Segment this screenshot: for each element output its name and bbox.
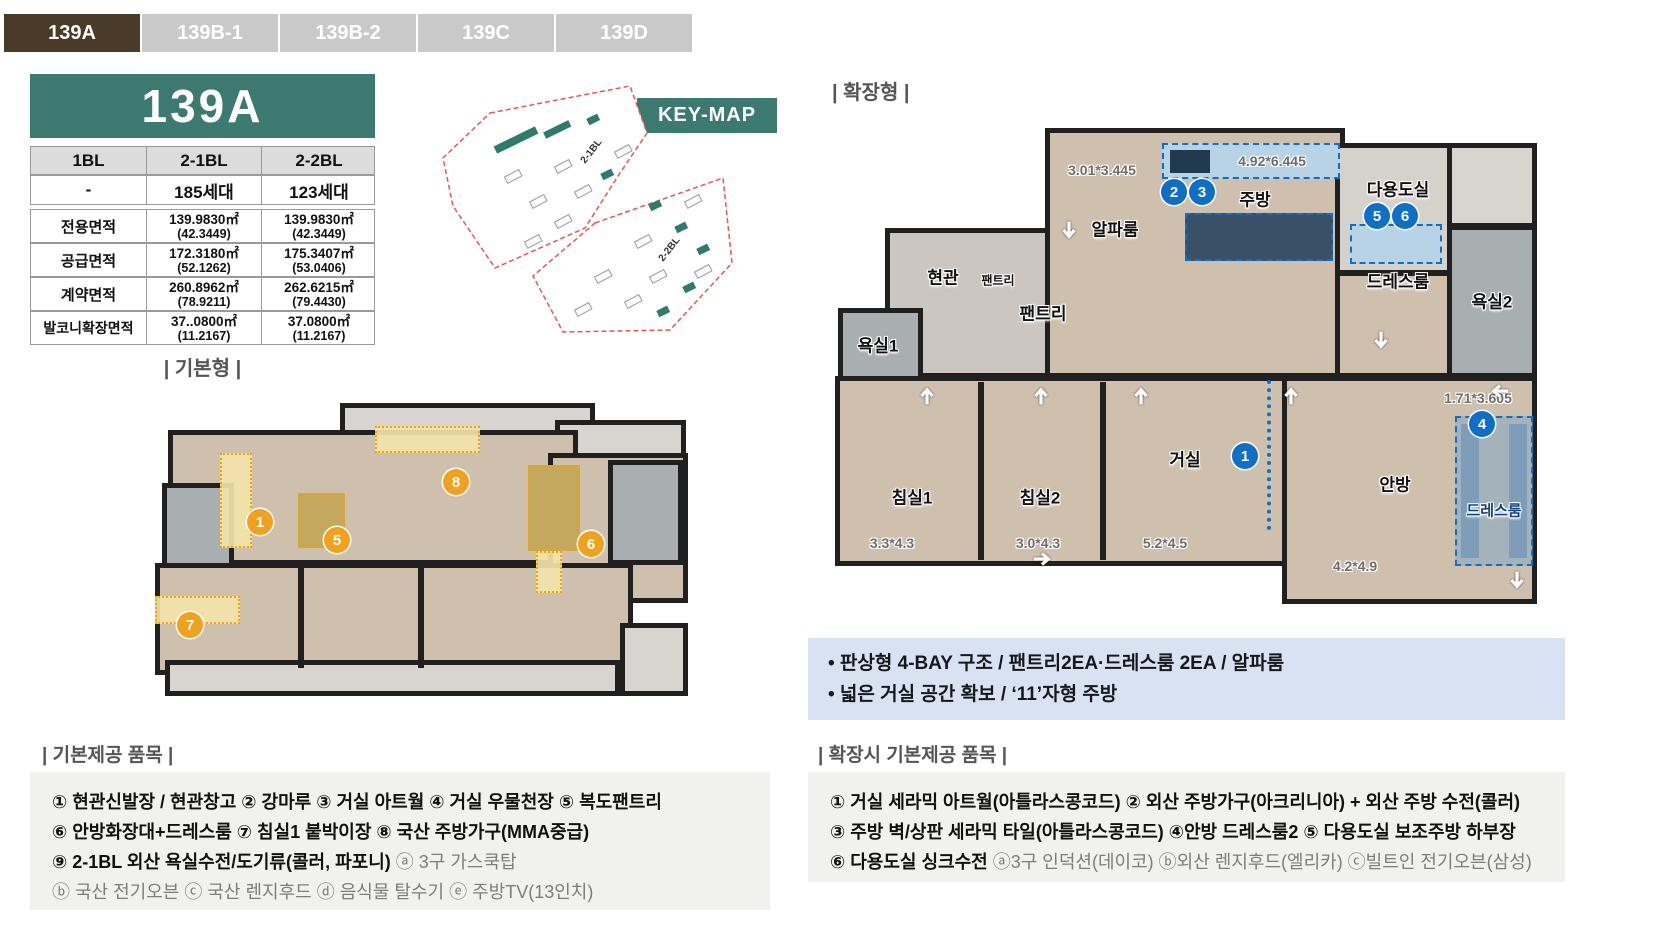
summary-bullet-1: • 판상형 4-BAY 구조 / 팬트리2EA·드레스룸 2EA / 알파룸 bbox=[828, 653, 1284, 674]
area-value: 139.9830㎡ bbox=[284, 212, 354, 227]
households-1bl: - bbox=[31, 176, 146, 204]
master-dressroom-highlight bbox=[1455, 416, 1533, 566]
row-label: 발코니확장면적 bbox=[31, 312, 146, 344]
page: 139A 139B-1 139B-2 139C 139D 139A 1BL 2-… bbox=[0, 0, 1665, 938]
col-header-21bl: 2-1BL bbox=[146, 147, 261, 174]
living-extension-line bbox=[1267, 380, 1271, 530]
table-row: 발코니확장면적 37..0800㎡(11.2167) 37.0800㎡(11.2… bbox=[30, 311, 375, 345]
direction-arrow-icon bbox=[1030, 386, 1052, 408]
basic-plan-heading: | 기본형 | bbox=[30, 352, 375, 381]
master-label: 안방 bbox=[1379, 471, 1410, 496]
direction-arrow-icon bbox=[1130, 386, 1152, 408]
area-sub: (53.0406) bbox=[292, 261, 346, 275]
extended-items-box: ① 거실 세라믹 아트월(아틀라스콩코드) ② 외산 주방가구(아크리니아) +… bbox=[808, 772, 1565, 882]
area-sub: (42.3449) bbox=[292, 227, 346, 241]
direction-arrow-icon bbox=[1506, 568, 1528, 590]
area-sub: (42.3449) bbox=[177, 227, 231, 241]
direction-arrow-icon bbox=[1058, 218, 1080, 240]
summary-bullet-2: • 넓은 거실 공간 확보 / ‘11’자형 주방 bbox=[828, 684, 1117, 705]
tab-139c[interactable]: 139C bbox=[418, 14, 554, 52]
direction-arrow-icon bbox=[1370, 328, 1392, 350]
ext-badge-2: 2 bbox=[1161, 179, 1187, 205]
tab-139d[interactable]: 139D bbox=[556, 14, 692, 52]
pantry-label: 팬트리 bbox=[1020, 300, 1067, 325]
households-22bl: 123세대 bbox=[261, 176, 376, 204]
extended-items-line3: ⑥ 다용도실 싱크수전 bbox=[830, 852, 993, 872]
table-row: 공급면적 172.3180㎡(52.1262) 175.3407㎡(53.040… bbox=[30, 243, 375, 277]
dressroom-label: 드레스룸 bbox=[1367, 268, 1430, 293]
master-dim: 4.2*4.9 bbox=[1333, 558, 1377, 574]
balcony bbox=[165, 660, 620, 696]
basic-floor-plan: 1 5 6 7 8 bbox=[150, 398, 695, 723]
row-label: 전용면적 bbox=[31, 210, 146, 242]
ext-badge-3: 3 bbox=[1189, 179, 1215, 205]
kitchen-label: 주방 bbox=[1239, 186, 1270, 211]
item-badge-8: 8 bbox=[443, 469, 469, 495]
basic-items-line1: ① 현관신발장 / 현관창고 ② 강마루 ③ 거실 아트월 ④ 거실 우물천장 … bbox=[52, 787, 748, 817]
row-label: 계약면적 bbox=[31, 278, 146, 310]
area-value: 37..0800㎡ bbox=[171, 314, 237, 329]
direction-arrow-icon bbox=[1030, 548, 1052, 570]
table-row: 계약면적 260.8962㎡(78.9211) 262.6215㎡(79.443… bbox=[30, 277, 375, 311]
extended-plan-heading: | 확장형 | bbox=[832, 76, 910, 105]
bath2-label: 욕실2 bbox=[1472, 288, 1513, 313]
dress2-label: 드레스룸 bbox=[1466, 500, 1521, 521]
cooktop bbox=[1170, 150, 1210, 173]
entry-label: 현관 bbox=[927, 264, 958, 289]
pantry-small-label: 팬트리 bbox=[981, 272, 1014, 289]
area-value: 175.3407㎡ bbox=[284, 246, 354, 261]
table-row: 전용면적 139.9830㎡(42.3449) 139.9830㎡(42.344… bbox=[30, 209, 375, 243]
area-sub: (11.2167) bbox=[178, 329, 231, 343]
area-value: 172.3180㎡ bbox=[169, 246, 239, 261]
basic-items-line3: ⑨ 2-1BL 외산 욕실수전/도기류(콜러, 파포니) bbox=[52, 852, 396, 872]
household-row: - 185세대 123세대 bbox=[30, 175, 375, 205]
bed1-dim: 3.3*4.3 bbox=[870, 535, 914, 551]
living-label: 거실 bbox=[1169, 446, 1200, 471]
direction-arrow-icon bbox=[1490, 380, 1512, 402]
col-header-1bl: 1BL bbox=[31, 147, 146, 174]
living-dim: 5.2*4.5 bbox=[1143, 535, 1187, 551]
extended-items-line2: ③ 주방 벽/상판 세라믹 타일(아틀라스콩코드) ④안방 드레스룸2 ⑤ 다용… bbox=[830, 817, 1543, 847]
item-highlight-vanity bbox=[536, 551, 562, 593]
area-sub: (78.9211) bbox=[178, 295, 231, 309]
item-badge-7: 7 bbox=[177, 612, 203, 638]
row-label: 공급면적 bbox=[31, 244, 146, 276]
bed1-label: 침실1 bbox=[892, 484, 933, 509]
extended-items-line3-gray: ⓐ3구 인덕션(데이코) ⓑ외산 렌지후드(엘리카) ⓒ빌트인 전기오븐(삼성) bbox=[993, 852, 1532, 872]
ext-badge-1: 1 bbox=[1232, 443, 1258, 469]
item-badge-6: 6 bbox=[578, 531, 604, 557]
area-value: 139.9830㎡ bbox=[169, 212, 239, 227]
area-value: 37.0800㎡ bbox=[288, 314, 350, 329]
area-value: 260.8962㎡ bbox=[169, 280, 239, 295]
direction-arrow-icon bbox=[916, 386, 938, 408]
alpha-dim: 3.01*3.445 bbox=[1068, 162, 1136, 178]
unit-type-title: 139A bbox=[30, 74, 375, 138]
extended-items-heading: | 확장시 기본제공 품목 | bbox=[818, 740, 1007, 767]
item-badge-5: 5 bbox=[324, 527, 350, 553]
balcony bbox=[1447, 143, 1537, 228]
extended-summary-box: • 판상형 4-BAY 구조 / 팬트리2EA·드레스룸 2EA / 알파룸 •… bbox=[808, 638, 1565, 720]
kitchen-dim: 4.92*6.445 bbox=[1238, 153, 1306, 169]
balcony bbox=[620, 623, 688, 696]
col-header-22bl: 2-2BL bbox=[261, 147, 376, 174]
item-highlight-shoecloset bbox=[220, 453, 252, 548]
keymap-site-plan: 2-1BL 2-2BL bbox=[435, 78, 735, 343]
area-sub: (52.1262) bbox=[177, 261, 231, 275]
utility-label: 다용도실 bbox=[1367, 176, 1430, 201]
area-sub: (79.4430) bbox=[292, 295, 346, 309]
basic-items-line3-gray: ⓐ 3구 가스쿡탑 bbox=[396, 852, 517, 872]
basic-items-box: ① 현관신발장 / 현관창고 ② 강마루 ③ 거실 아트월 ④ 거실 우물천장 … bbox=[30, 772, 770, 910]
basic-items-line2: ⑥ 안방화장대+드레스룸 ⑦ 침실1 붙박이장 ⑧ 국산 주방가구(MMA중급) bbox=[52, 817, 748, 847]
utility-sink-highlight bbox=[1350, 224, 1442, 264]
item-badge-1: 1 bbox=[247, 509, 273, 535]
item-highlight-dressroom bbox=[528, 465, 580, 551]
table-header-row: 1BL 2-1BL 2-2BL bbox=[30, 146, 375, 175]
ext-badge-4: 4 bbox=[1469, 411, 1495, 437]
area-sub: (11.2167) bbox=[293, 329, 346, 343]
direction-arrow-icon bbox=[1280, 386, 1302, 408]
households-21bl: 185세대 bbox=[146, 176, 261, 204]
ext-badge-5: 5 bbox=[1364, 203, 1390, 229]
tab-139b2[interactable]: 139B-2 bbox=[280, 14, 416, 52]
bath1-label: 욕실1 bbox=[858, 332, 899, 357]
extended-floor-plan: 3.01*3.445 알파룸 4.92*6.445 주방 다용도실 드레스룸 욕… bbox=[830, 128, 1562, 606]
ext-badge-6: 6 bbox=[1392, 203, 1418, 229]
basic-items-line4: ⓑ 국산 전기오븐 ⓒ 국산 렌지후드 ⓓ 음식물 탈수기 ⓔ 주방TV(13인… bbox=[52, 877, 748, 907]
tab-139a[interactable]: 139A bbox=[4, 14, 140, 52]
extended-items-line1: ① 거실 세라믹 아트월(아틀라스콩코드) ② 외산 주방가구(아크리니아) +… bbox=[830, 787, 1543, 817]
tab-139b1[interactable]: 139B-1 bbox=[142, 14, 278, 52]
basic-items-heading: | 기본제공 품목 | bbox=[42, 740, 173, 767]
kitchen-island-highlight bbox=[1185, 213, 1333, 261]
alpha-room-label: 알파룸 bbox=[1092, 216, 1139, 241]
area-value: 262.6215㎡ bbox=[284, 280, 354, 295]
bathroom bbox=[608, 460, 683, 565]
item-highlight-kitchen bbox=[375, 426, 480, 453]
bed2-label: 침실2 bbox=[1020, 484, 1061, 509]
